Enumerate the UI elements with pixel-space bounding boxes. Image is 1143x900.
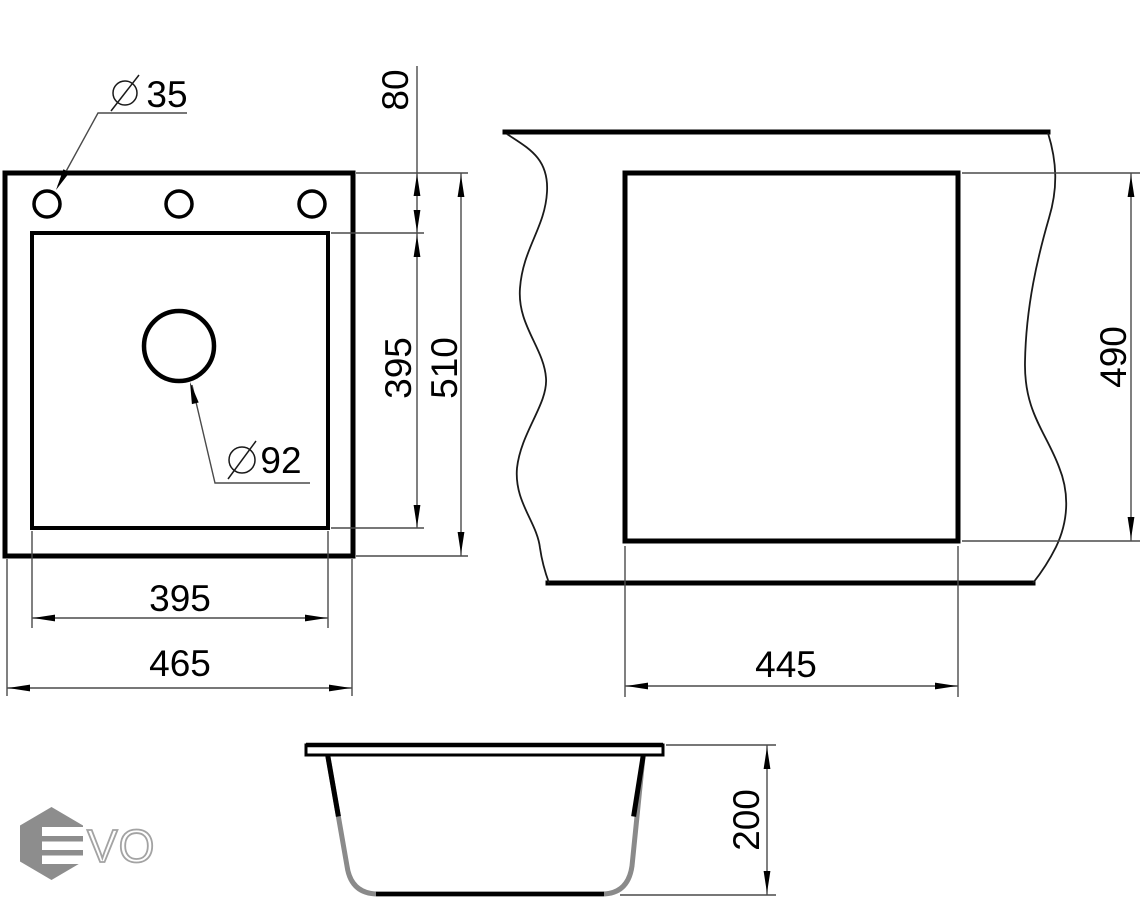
outer-rim-outline: [5, 173, 353, 556]
break-line-right: [1025, 133, 1066, 583]
arrowhead: [458, 532, 465, 554]
arrowhead: [414, 505, 421, 527]
diameter-icon: [228, 441, 256, 479]
cutout-width-dim-group: 445: [625, 546, 958, 697]
overall-width-dimension: 465: [149, 643, 211, 684]
cutout-length-dim-group: 490: [962, 173, 1140, 541]
faucet-hole-center: [166, 191, 192, 217]
drawing-linework: 35 92: [0, 0, 1143, 900]
arrowhead: [764, 747, 771, 769]
bowl-width-dimension: 395: [149, 578, 211, 619]
depth-dimension: 200: [726, 789, 767, 851]
bowl-length-dimension: 395: [378, 337, 419, 399]
arrowhead: [414, 174, 421, 196]
hole-diameter-label: 35: [146, 74, 187, 115]
sink-technical-drawing: 35 92: [0, 0, 1143, 900]
arrowhead: [305, 615, 327, 622]
diameter-icon: [111, 75, 139, 111]
faucet-hole-right: [299, 191, 325, 217]
drain-diameter-label: 92: [260, 440, 301, 481]
drain-hole: [144, 311, 214, 381]
basin-outline: [328, 757, 643, 894]
arrowhead: [329, 685, 351, 692]
arrowhead: [33, 615, 55, 622]
overall-length-dimension: 510: [424, 337, 465, 399]
basin-wall-left: [328, 757, 338, 814]
arrowhead: [1128, 175, 1135, 197]
evo-logo: VO: [20, 807, 155, 880]
arrowhead: [414, 235, 421, 257]
drain-diameter-callout: 92: [190, 382, 310, 483]
cutout-rect: [625, 173, 958, 541]
arrowhead: [8, 685, 30, 692]
cutout-width-dimension: 445: [755, 644, 817, 685]
cutout-view: 490 445: [505, 132, 1140, 697]
section-view: 200: [306, 745, 776, 895]
arrowhead: [458, 175, 465, 197]
logo-e-bars: [42, 827, 86, 864]
break-line-left: [507, 134, 549, 583]
arrowhead: [414, 210, 421, 232]
logo-wordmark: VO: [87, 820, 155, 872]
arrowhead: [626, 683, 648, 690]
arrowhead: [1128, 517, 1135, 539]
hole-offset-dimension: 80: [375, 69, 416, 110]
cutout-length-dimension: 490: [1093, 326, 1134, 388]
arrowhead: [764, 871, 771, 893]
top-view: 35 92: [5, 66, 468, 696]
faucet-hole-left: [34, 191, 60, 217]
arrowhead: [190, 382, 199, 404]
arrowhead: [935, 683, 957, 690]
